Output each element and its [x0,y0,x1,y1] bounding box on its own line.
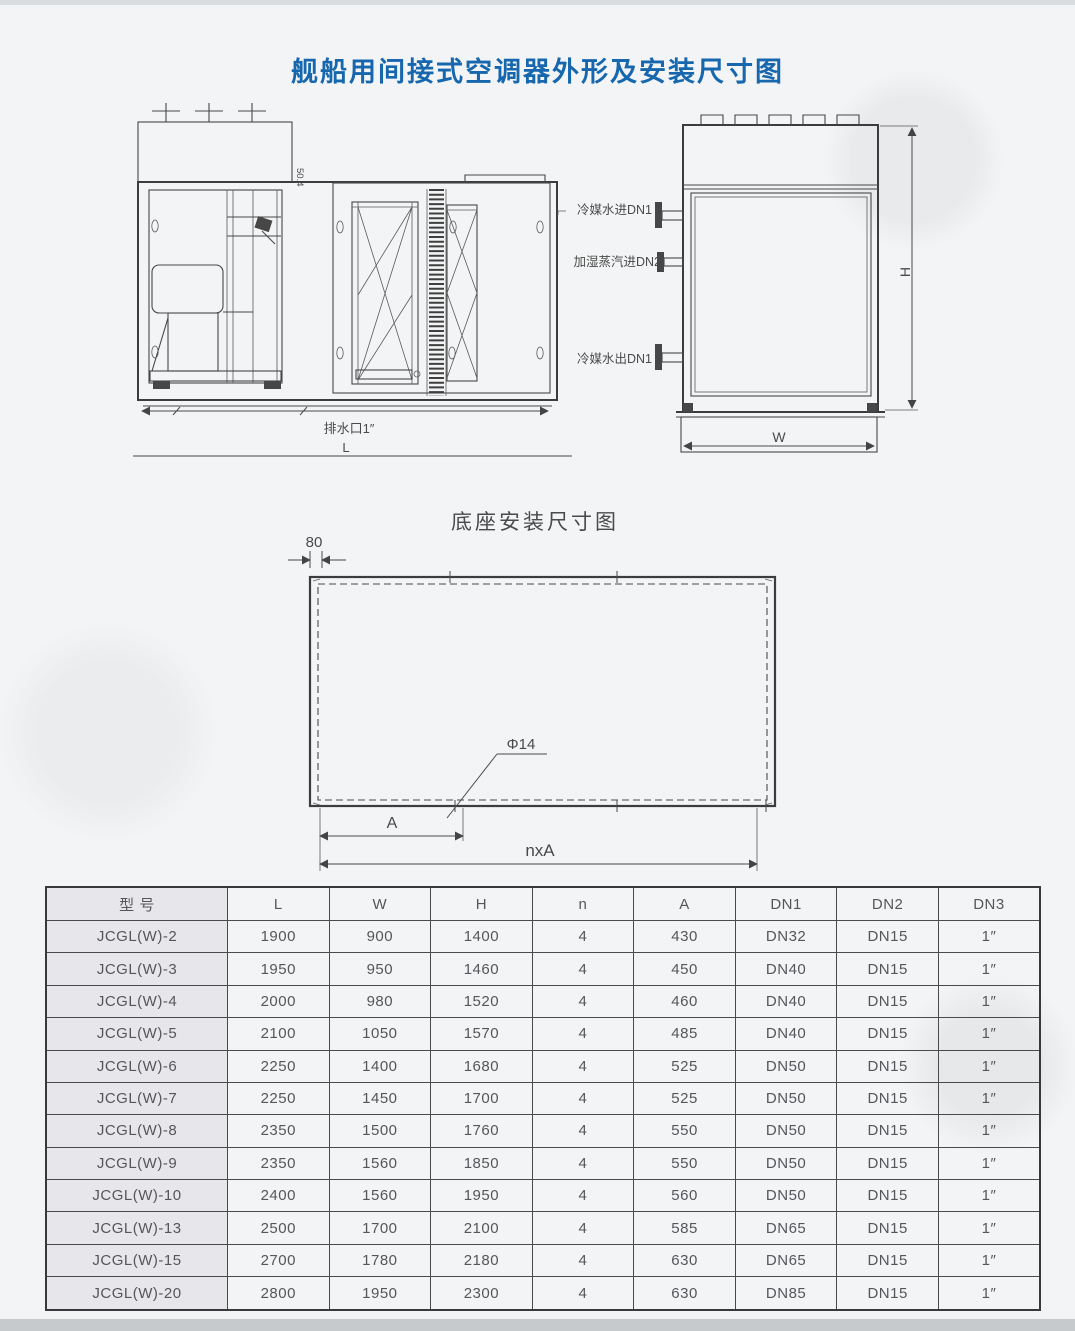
foot [264,381,281,389]
table-cell: 1500 [329,1115,431,1147]
table-cell: 550 [634,1115,736,1147]
table-cell: DN15 [837,953,939,985]
table-row: JCGL(W)-62250140016804525DN50DN151″ [46,1050,1040,1082]
bolt-hole-ticks [450,571,766,812]
hole-leader-line [447,754,547,818]
table-cell: 2180 [431,1244,533,1276]
table-cell: 430 [634,921,736,953]
table-cell: DN15 [837,1050,939,1082]
front-casing [138,182,557,400]
dim-h-label: H [897,267,913,277]
table-cell: 1700 [431,1082,533,1114]
table-cell: 1400 [431,921,533,953]
col-header: L [228,887,330,921]
table-cell: 4 [532,953,634,985]
page-title: 舰船用间接式空调器外形及安装尺寸图 [0,50,1075,89]
table-cell: 980 [329,985,431,1017]
front-top-box [138,122,292,182]
roof-pipe-stubs [152,103,266,122]
roof-pipe-stubs [701,115,859,125]
model-cell: JCGL(W)-10 [46,1180,228,1212]
table-cell: DN50 [735,1082,837,1114]
table-cell: 4 [532,1018,634,1050]
handle [152,220,158,232]
dim-a-label: A [387,815,398,832]
base-diagram-title: 底座安装尺寸图 [451,511,619,534]
handle [337,221,343,233]
table-cell: 1950 [329,1277,431,1310]
side-casing [683,125,878,412]
handle [537,347,543,359]
steam-in-label: 加湿蒸汽进DN2 [573,254,661,269]
table-cell: 4 [532,1115,634,1147]
table-cell: 1850 [431,1147,533,1179]
table-cell: 4 [532,1212,634,1244]
table-row: JCGL(W)-152700178021804630DN65DN151″ [46,1244,1040,1276]
table-cell: 900 [329,921,431,953]
table-cell: 1″ [938,1115,1040,1147]
outline-drawing: 50.4 [0,95,1075,475]
table-cell: 1400 [329,1050,431,1082]
model-cell: JCGL(W)-5 [46,1018,228,1050]
table-cell: DN32 [735,921,837,953]
table-cell: 1520 [431,985,533,1017]
table-cell: 4 [532,985,634,1017]
table-cell: 2500 [228,1212,330,1244]
right-access-door [447,205,477,381]
table-header-row: 型 号 L W H n A DN1 DN2 DN3 [46,887,1040,921]
motor-block [254,216,272,232]
model-cell: JCGL(W)-4 [46,985,228,1017]
table-cell: 1″ [938,1018,1040,1050]
table-cell: 1″ [938,921,1040,953]
table-cell: 1570 [431,1018,533,1050]
table-cell: DN40 [735,985,837,1017]
fan-section [149,190,282,389]
table-cell: DN15 [837,1244,939,1276]
table-cell: 550 [634,1147,736,1179]
table-row: JCGL(W)-202800195023004630DN85DN151″ [46,1277,1040,1310]
table-row: JCGL(W)-102400156019504560DN50DN151″ [46,1180,1040,1212]
table-row: JCGL(W)-82350150017604550DN50DN151″ [46,1115,1040,1147]
base-frame-outline [310,577,775,806]
table-row: JCGL(W)-72250145017004525DN50DN151″ [46,1082,1040,1114]
table-cell: 1″ [938,985,1040,1017]
model-cell: JCGL(W)-9 [46,1147,228,1179]
model-cell: JCGL(W)-15 [46,1244,228,1276]
table-row: JCGL(W)-132500170021004585DN65DN151″ [46,1212,1040,1244]
table-cell: DN40 [735,1018,837,1050]
table-cell: 4 [532,1180,634,1212]
table-cell: DN15 [837,1018,939,1050]
table-cell: 585 [634,1212,736,1244]
front-view-drawing: 50.4 [133,103,572,456]
hole-diameter-label: Φ14 [507,736,536,753]
roof-lid [465,175,545,182]
model-cell: JCGL(W)-13 [46,1212,228,1244]
front-base-dimension: 排水口1″ L [133,406,572,456]
table-row: JCGL(W)-2190090014004430DN32DN151″ [46,921,1040,953]
table-cell: 4 [532,1277,634,1310]
col-header: H [431,887,533,921]
table-cell: DN50 [735,1147,837,1179]
table-cell: 630 [634,1277,736,1310]
side-view-drawing: 冷媒水进DN1 加湿蒸汽进DN2 冷媒水出DN1 W H [573,115,918,452]
pipe-out-label: 冷媒水出DN1 [577,352,652,366]
table-cell: 2800 [228,1277,330,1310]
table-cell: 2350 [228,1147,330,1179]
table-cell: 1460 [431,953,533,985]
table-cell: 950 [329,953,431,985]
col-header: DN1 [735,887,837,921]
handle [449,347,455,359]
table-cell: DN65 [735,1212,837,1244]
table-cell: 630 [634,1244,736,1276]
table-row: JCGL(W)-4200098015204460DN40DN151″ [46,985,1040,1017]
table-cell: 1″ [938,1277,1040,1310]
fan-base-channel [150,371,281,381]
table-cell: DN15 [837,1082,939,1114]
col-header: n [532,887,634,921]
table-cell: 2250 [228,1082,330,1114]
col-header: DN2 [837,887,939,921]
table-cell: 1″ [938,953,1040,985]
dim-nxa-label: nxA [525,841,555,860]
pipe-connections [655,202,683,370]
table-cell: 4 [532,1147,634,1179]
table-cell: DN40 [735,953,837,985]
table-row: JCGL(W)-52100105015704485DN40DN151″ [46,1018,1040,1050]
dim-l-label: L [342,440,349,455]
table-cell: 1″ [938,1147,1040,1179]
pipe-in-label: 冷媒水进DN1 [577,203,652,217]
model-cell: JCGL(W)-2 [46,921,228,953]
model-cell: JCGL(W)-6 [46,1050,228,1082]
table-row: JCGL(W)-92350156018504550DN50DN151″ [46,1147,1040,1179]
table-cell: 2350 [228,1115,330,1147]
table-cell: DN65 [735,1244,837,1276]
table-cell: 1″ [938,1212,1040,1244]
table-cell: 1780 [329,1244,431,1276]
faint-note: 50.4 [294,168,305,187]
table-cell: 1760 [431,1115,533,1147]
table-cell: DN15 [837,1180,939,1212]
handle [537,221,543,233]
table-cell: 2100 [431,1212,533,1244]
table-cell: 1″ [938,1050,1040,1082]
table-cell: DN15 [837,1277,939,1310]
table-cell: 1900 [228,921,330,953]
base-frame-inner-dashed [318,584,767,800]
table-cell: DN85 [735,1277,837,1310]
table-cell: 560 [634,1180,736,1212]
table-cell: 1″ [938,1180,1040,1212]
table-cell: DN15 [837,921,939,953]
model-cell: JCGL(W)-8 [46,1115,228,1147]
scan-edge-top [0,0,1075,5]
table-cell: 1050 [329,1018,431,1050]
base-installation-diagram: 底座安装尺寸图 80 Φ14 A nxA [0,495,1075,890]
col-header: W [329,887,431,921]
table-cell: DN15 [837,1212,939,1244]
specification-table: 型 号 L W H n A DN1 DN2 DN3 JCGL(W)-219009… [45,886,1041,1311]
table-cell: 1680 [431,1050,533,1082]
scan-edge-bottom [0,1319,1075,1331]
table-cell: 1450 [329,1082,431,1114]
table-cell: 4 [532,1244,634,1276]
model-cell: JCGL(W)-7 [46,1082,228,1114]
table-cell: DN15 [837,1147,939,1179]
table-cell: DN15 [837,1115,939,1147]
foot [153,381,170,389]
table-cell: 2250 [228,1050,330,1082]
table-cell: 450 [634,953,736,985]
dim-80-label: 80 [306,534,323,551]
col-header-model: 型 号 [46,887,228,921]
table-cell: 525 [634,1082,736,1114]
table-cell: 2100 [228,1018,330,1050]
table-cell: 2300 [431,1277,533,1310]
table-cell: 525 [634,1050,736,1082]
scanned-document-page: { "page": { "title": "舰船用间接式空调器外形及安装尺寸图"… [0,0,1075,1331]
table-cell: DN50 [735,1115,837,1147]
col-header: DN3 [938,887,1040,921]
table-cell: 2400 [228,1180,330,1212]
table-cell: 2000 [228,985,330,1017]
model-cell: JCGL(W)-3 [46,953,228,985]
table-cell: 1950 [431,1180,533,1212]
table-cell: 460 [634,985,736,1017]
table-cell: 1″ [938,1082,1040,1114]
table-cell: DN50 [735,1180,837,1212]
model-cell: JCGL(W)-20 [46,1277,228,1310]
table-cell: 4 [532,1082,634,1114]
table-cell: 1560 [329,1147,431,1179]
table-row: JCGL(W)-3195095014604450DN40DN151″ [46,953,1040,985]
table-cell: DN50 [735,1050,837,1082]
table-cell: 1700 [329,1212,431,1244]
leader-tick [558,211,566,215]
table-cell: 1″ [938,1244,1040,1276]
table-cell: 1560 [329,1180,431,1212]
coil-section [333,183,566,396]
table-cell: 485 [634,1018,736,1050]
drain-label: 排水口1″ [324,421,375,436]
table-cell: 4 [532,1050,634,1082]
col-header: A [634,887,736,921]
table-cell: 4 [532,921,634,953]
handle [337,347,343,359]
side-door [691,193,871,396]
dim-w-label: W [772,429,786,445]
table-cell: DN15 [837,985,939,1017]
fan-housing [152,265,223,313]
table-cell: 1950 [228,953,330,985]
table-cell: 2700 [228,1244,330,1276]
